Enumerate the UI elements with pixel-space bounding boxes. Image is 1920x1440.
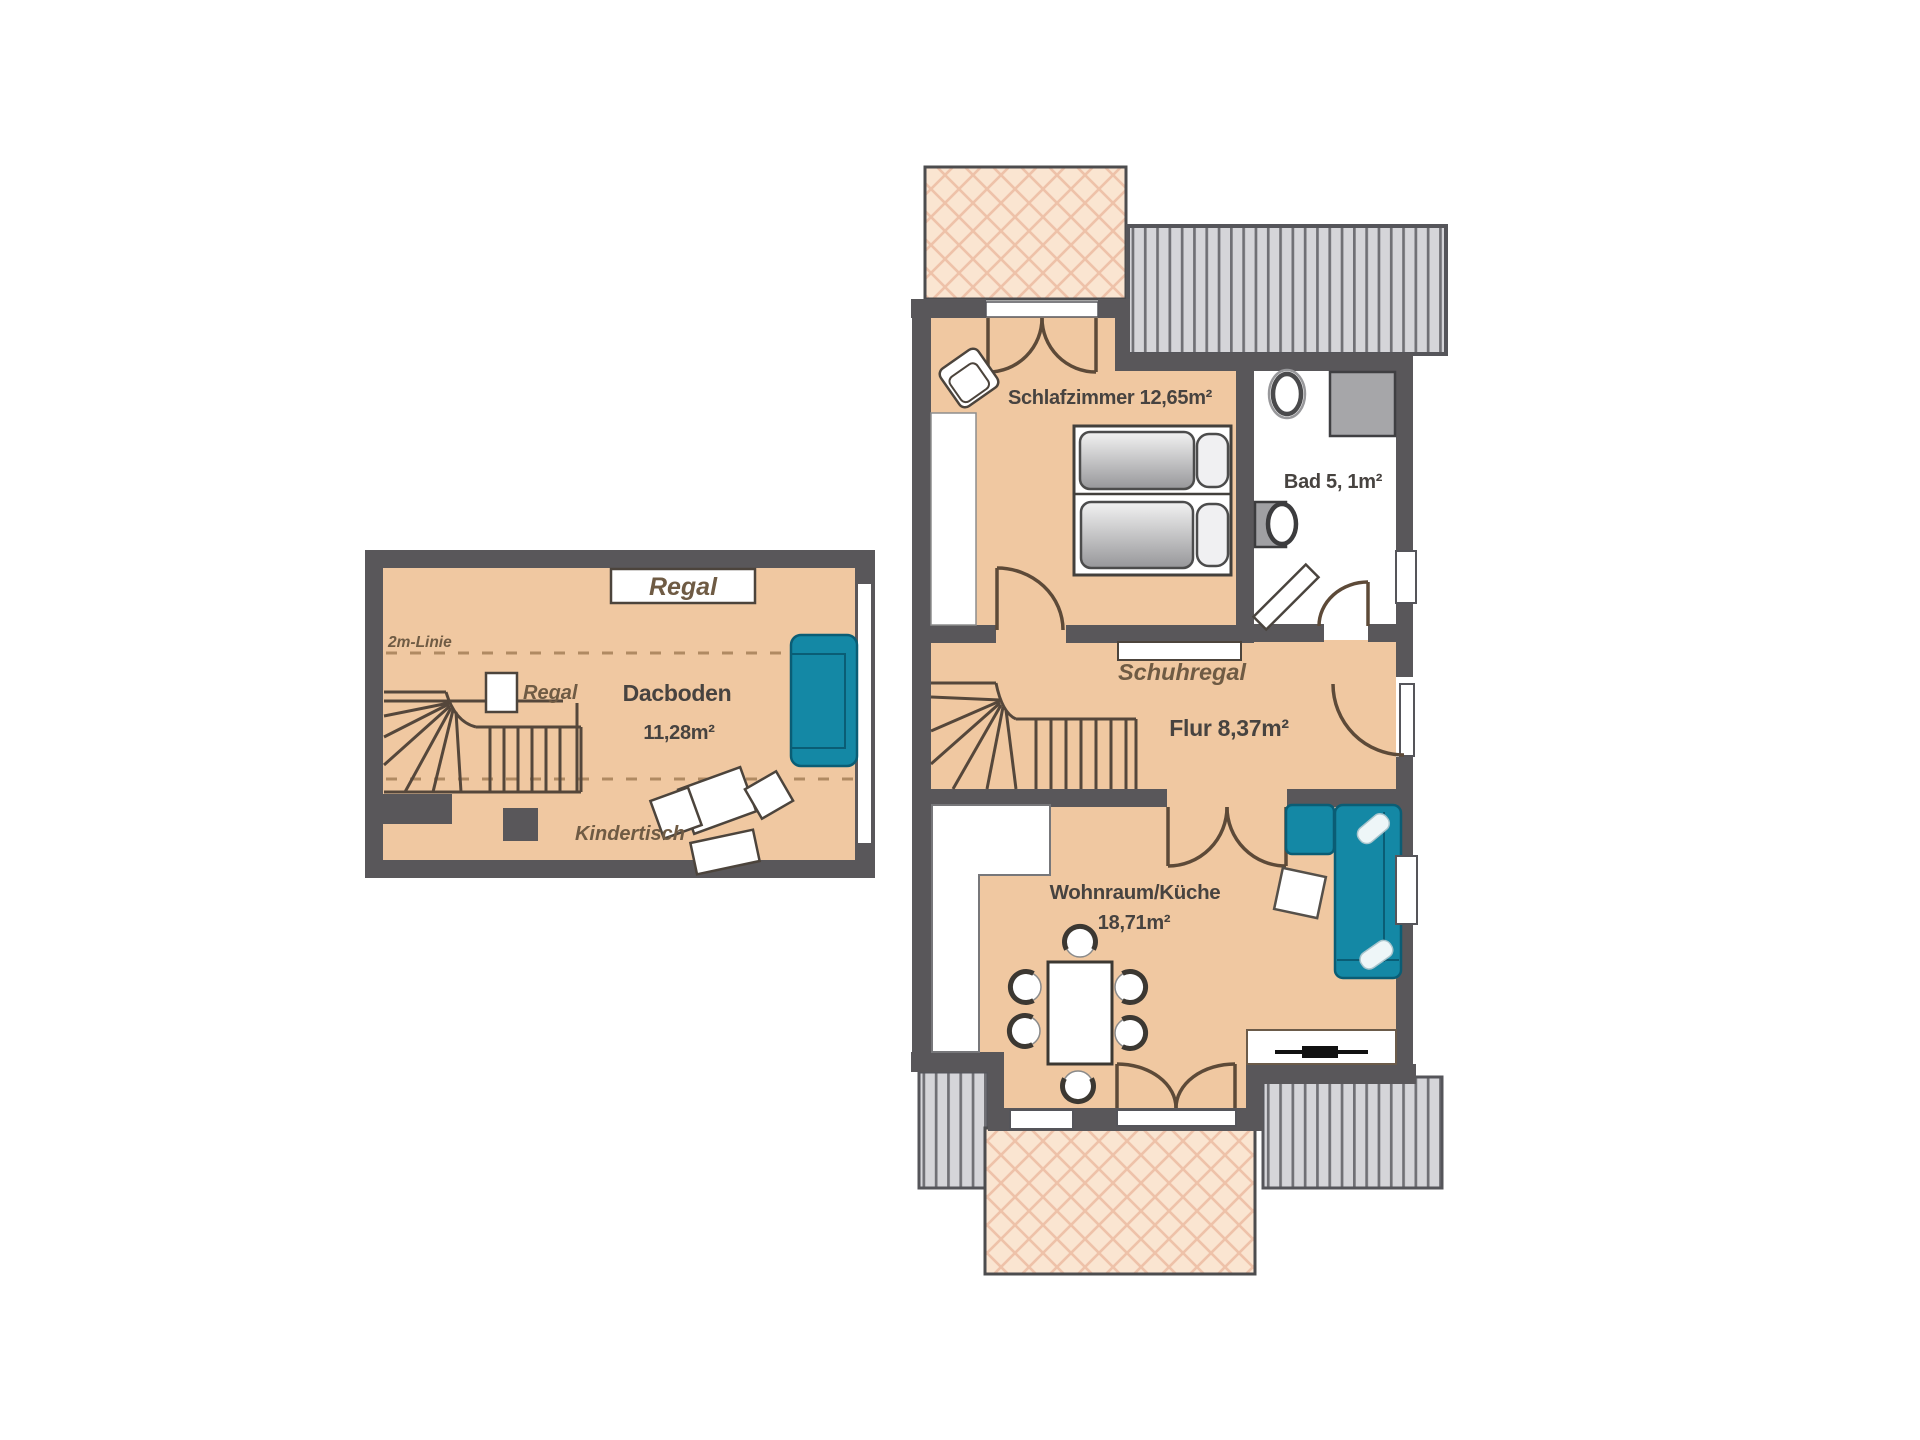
svg-text:Flur 8,37m²: Flur 8,37m² — [1169, 715, 1289, 741]
svg-text:Bad 5, 1m²: Bad 5, 1m² — [1284, 471, 1383, 493]
svg-text:Regal: Regal — [649, 573, 718, 601]
svg-text:18,71m²: 18,71m² — [1098, 912, 1171, 934]
svg-text:11,28m²: 11,28m² — [643, 722, 715, 744]
svg-text:2m-Linie: 2m-Linie — [387, 634, 452, 651]
svg-text:Schlafzimmer 12,65m²: Schlafzimmer 12,65m² — [1008, 387, 1213, 409]
svg-text:Regal: Regal — [523, 682, 578, 704]
svg-text:Wohnraum/Küche: Wohnraum/Küche — [1050, 881, 1221, 904]
svg-text:Kindertisch: Kindertisch — [575, 823, 685, 845]
svg-text:Schuhregal: Schuhregal — [1118, 659, 1246, 685]
svg-text:Dacboden: Dacboden — [623, 680, 732, 706]
